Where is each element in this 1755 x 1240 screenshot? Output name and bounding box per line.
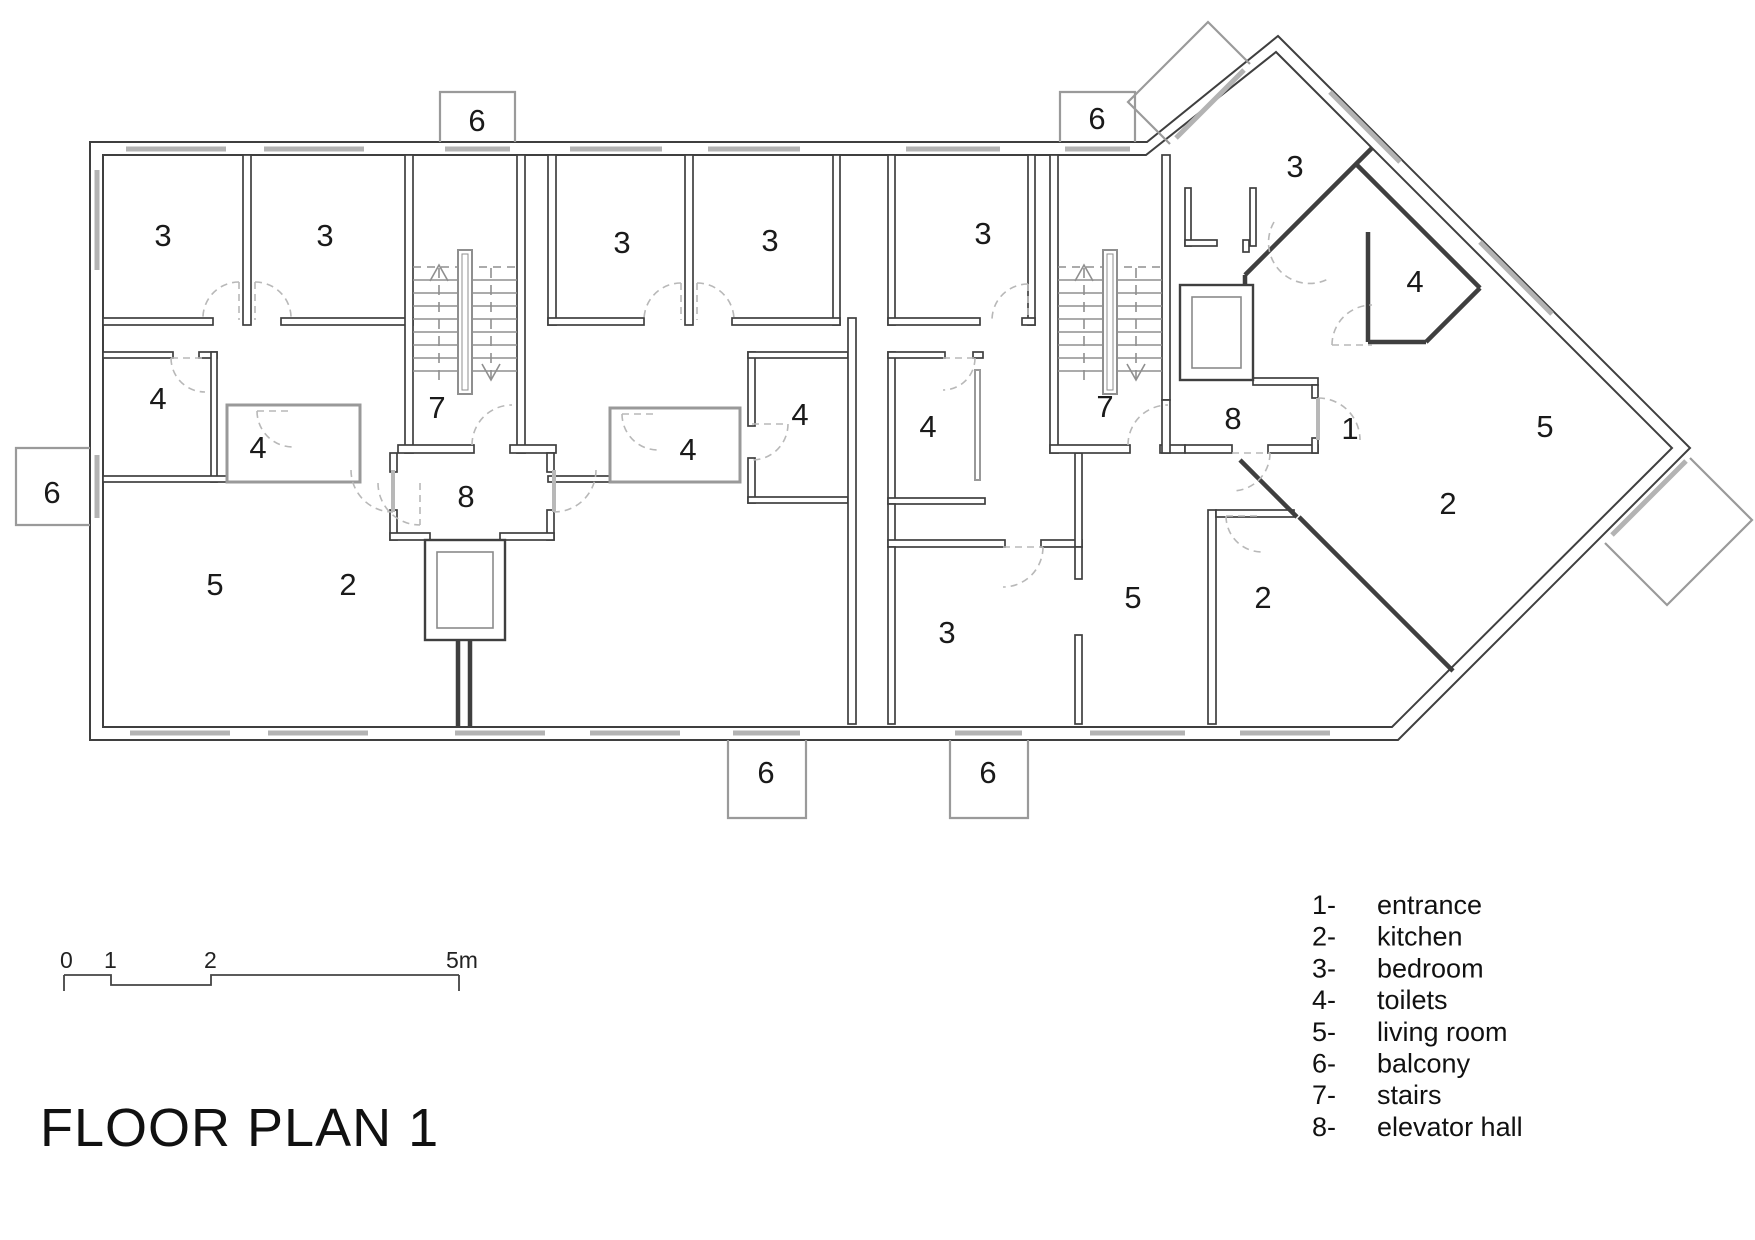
room-label-4: 4 <box>1406 264 1423 299</box>
room-label-6: 6 <box>757 755 774 790</box>
room-label-6: 6 <box>979 755 996 790</box>
legend-label: toilets <box>1377 985 1448 1015</box>
room-label-1: 1 <box>1341 411 1358 446</box>
room-label-2: 2 <box>1439 486 1456 521</box>
legend-label: entrance <box>1377 890 1482 920</box>
room-label-8: 8 <box>1224 401 1241 436</box>
scale-bar-line <box>64 975 459 991</box>
legend-num: 3- <box>1312 953 1336 983</box>
legend-label: balcony <box>1377 1049 1471 1079</box>
room-label-3: 3 <box>316 218 333 253</box>
room-label-4: 4 <box>919 409 936 444</box>
page-title: FLOOR PLAN 1 <box>40 1098 439 1158</box>
legend-num: 6- <box>1312 1049 1336 1079</box>
legend-num: 7- <box>1312 1080 1336 1110</box>
legend-num: 4- <box>1312 985 1336 1015</box>
room-label-3: 3 <box>613 225 630 260</box>
scale-label: 0 <box>60 947 73 973</box>
scale-bar: 0125m <box>60 947 478 991</box>
legend: 1-entrance2-kitchen3-bedroom4-toilets5-l… <box>1312 890 1523 1142</box>
room-label-4: 4 <box>791 397 808 432</box>
room-label-7: 7 <box>1096 389 1113 424</box>
room-label-5: 5 <box>1124 580 1141 615</box>
room-label-8: 8 <box>457 479 474 514</box>
legend-label: living room <box>1377 1017 1508 1047</box>
room-label-4: 4 <box>679 432 696 467</box>
legend-label: kitchen <box>1377 922 1463 952</box>
room-label-3: 3 <box>938 615 955 650</box>
legend-label: stairs <box>1377 1080 1442 1110</box>
room-label-6: 6 <box>468 103 485 138</box>
room-label-6: 6 <box>43 475 60 510</box>
room-label-3: 3 <box>154 218 171 253</box>
room-label-6: 6 <box>1088 101 1105 136</box>
room-label-4: 4 <box>149 381 166 416</box>
room-label-2: 2 <box>1254 580 1271 615</box>
legend-label: elevator hall <box>1377 1112 1523 1142</box>
room-label-3: 3 <box>974 216 991 251</box>
scale-label: 5m <box>446 947 478 973</box>
scale-label: 2 <box>204 947 217 973</box>
room-label-2: 2 <box>339 567 356 602</box>
room-label-5: 5 <box>206 567 223 602</box>
legend-num: 8- <box>1312 1112 1336 1142</box>
legend-num: 5- <box>1312 1017 1336 1047</box>
room-label-7: 7 <box>428 390 445 425</box>
interior-walls <box>103 148 1480 727</box>
room-label-3: 3 <box>761 223 778 258</box>
room-label-3: 3 <box>1286 149 1303 184</box>
floor-plan-page: 33674468523344346783526634152 0125m 1-en… <box>0 0 1755 1240</box>
legend-num: 1- <box>1312 890 1336 920</box>
room-label-4: 4 <box>249 430 266 465</box>
floor-plan-drawing: 33674468523344346783526634152 0125m 1-en… <box>0 0 1755 1240</box>
legend-label: bedroom <box>1377 953 1484 983</box>
legend-num: 2- <box>1312 922 1336 952</box>
scale-label: 1 <box>104 947 117 973</box>
room-label-5: 5 <box>1536 409 1553 444</box>
